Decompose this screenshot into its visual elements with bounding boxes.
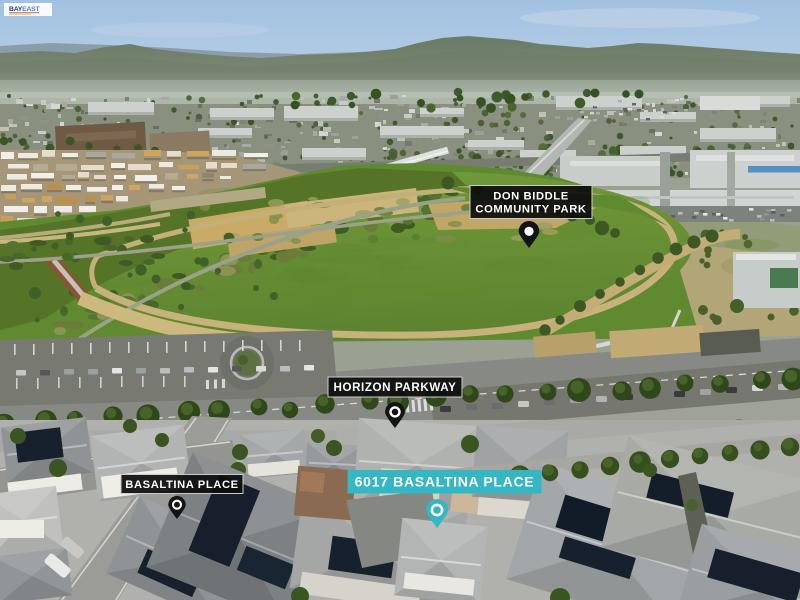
svg-text:COMMUNITY PARK: COMMUNITY PARK	[475, 204, 586, 216]
svg-text:6017 BASALTINA PLACE: 6017 BASALTINA PLACE	[355, 474, 535, 490]
svg-text:DON BIDDLE: DON BIDDLE	[493, 190, 569, 202]
svg-text:BASALTINA PLACE: BASALTINA PLACE	[125, 479, 238, 491]
svg-text:BAYEAST: BAYEAST	[9, 6, 41, 13]
svg-text:HORIZON PARKWAY: HORIZON PARKWAY	[333, 381, 456, 394]
